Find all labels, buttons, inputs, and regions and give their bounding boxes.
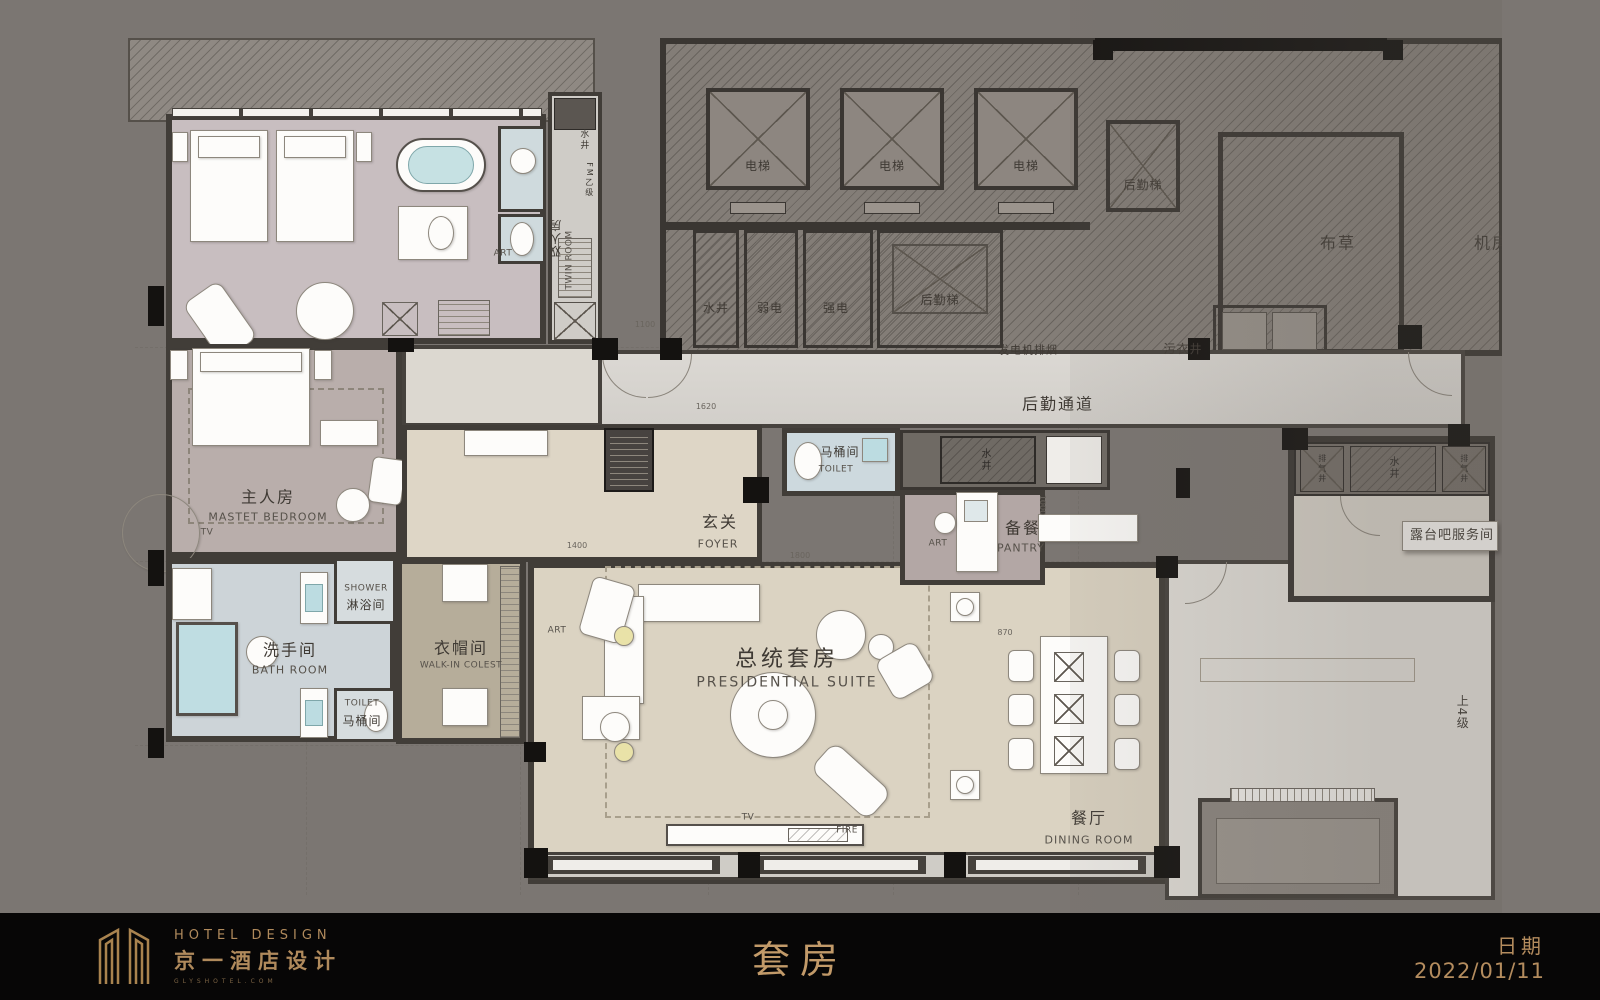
master-bedroom-label-zh: 主人房 (241, 487, 295, 506)
closet-label-en: WALK-IN COLEST (420, 661, 502, 672)
water-shaft-label-vert: 水井 (1386, 456, 1398, 480)
round-coffee-table-center (758, 700, 788, 730)
art-label: ART (548, 626, 567, 637)
display-shelves (610, 434, 648, 486)
suite-hallway (402, 345, 602, 427)
vent-shaft (554, 302, 596, 340)
window-glass (553, 860, 712, 870)
service-lift-label: 后勤梯 (920, 293, 959, 307)
foyer-label-en: FOYER (698, 537, 739, 550)
twin-room-label-en: TWIN ROOM (565, 230, 576, 289)
column (148, 286, 164, 326)
dining-chair (1008, 650, 1034, 682)
water-shaft-label-vert: 水井 (578, 129, 589, 151)
wc (510, 222, 534, 256)
water-shaft-label-vert: 水井 (978, 448, 990, 472)
elevator-shaft (706, 88, 810, 190)
dimension: 1400 (567, 541, 587, 551)
date-label: 日期 (1414, 930, 1545, 959)
elevator-label: 电梯 (1013, 159, 1039, 173)
elevator-door (730, 202, 786, 214)
column (944, 852, 966, 878)
elevator-door (864, 202, 920, 214)
water-shaft-room (693, 230, 739, 348)
nightstand (314, 350, 332, 380)
dimension: 1620 (696, 402, 716, 412)
shower-label-zh: 淋浴间 (346, 598, 385, 612)
master-bedroom-label-en: MASTET BEDROOM (208, 510, 327, 523)
column (1398, 325, 1422, 349)
generator-vent-label: 发电机排烟 (998, 343, 1058, 356)
closet-label-zh: 衣帽间 (434, 638, 488, 657)
guest-toilet-label-en: TOILET (819, 465, 853, 476)
weak-power-label: 弱电 (757, 301, 783, 315)
date-block: 日期 2022/01/11 (1414, 930, 1545, 983)
wc (428, 216, 454, 250)
twin-room-label-zh: 双人房 (549, 219, 563, 258)
exhaust-shaft-label: 排气井 (1317, 454, 1327, 484)
basin (305, 584, 323, 612)
guest-toilet-label-zh: 马桶间 (820, 445, 859, 459)
suite-label-zh: 总统套房 (735, 647, 839, 673)
suite-floorplan-sheet: { "footer": { "brand_en": "HOTEL DESIGN"… (0, 0, 1600, 1000)
toilet-master-label-zh: 马桶间 (342, 714, 381, 728)
column (1093, 40, 1113, 60)
column (660, 338, 682, 360)
console-table (464, 430, 548, 456)
foyer-label-zh: 玄关 (702, 512, 738, 531)
corridor-label: 后勤通道 (1022, 394, 1094, 413)
elevator-label: 电梯 (879, 159, 905, 173)
column (388, 338, 414, 352)
pillow (284, 136, 346, 158)
plant (956, 776, 974, 794)
master-tv-label: TV (201, 528, 214, 539)
column (524, 742, 546, 762)
dining-label-zh: 餐厅 (1071, 808, 1107, 827)
shower-label-en: SHOWER (344, 584, 387, 595)
suite-label-en: PRESIDENTIAL SUITE (696, 675, 877, 692)
fire-door-label: FM乙级 (584, 162, 594, 198)
nightstand (356, 132, 372, 162)
toilet-master-label-en: TOILET (345, 699, 379, 710)
table-mat (1054, 652, 1084, 682)
shower-bench (172, 568, 212, 620)
art-label: ART (929, 539, 948, 550)
floor-plan: 双人房 TWIN ROOM 主人房 MASTET BEDROOM TV 洗手间 … (0, 0, 1600, 913)
pantry-sink (964, 500, 988, 522)
floor-lamp (614, 742, 634, 762)
sheet-title: 套房 (0, 929, 1600, 984)
column (524, 848, 548, 878)
bath-room-label-zh: 洗手间 (263, 640, 317, 659)
lobby-divider-wall (665, 222, 1090, 230)
desk-chair (600, 712, 630, 742)
credenza (1038, 514, 1138, 542)
column (738, 852, 760, 878)
window-glass (976, 860, 1138, 870)
column (1154, 846, 1180, 878)
hanging-rail (500, 566, 520, 738)
background-crop (1502, 0, 1600, 913)
bath-room-label-en: BATH ROOM (252, 663, 328, 676)
bench (320, 420, 378, 446)
column (148, 550, 164, 586)
kettle (934, 512, 956, 534)
column (592, 338, 618, 360)
table-mat (1054, 694, 1084, 724)
weak-power-room (744, 230, 798, 348)
elevator-label: 电梯 (745, 159, 771, 173)
wardrobe (442, 688, 488, 726)
column (1176, 468, 1190, 498)
fire-label: FIRE (836, 826, 858, 837)
core-top-wall (1095, 38, 1387, 51)
exhaust-shaft-label: 排气井 (1459, 454, 1469, 484)
basin (305, 700, 323, 726)
service-corridor (598, 350, 1465, 428)
column (1448, 424, 1470, 446)
dining-chair (1114, 738, 1140, 770)
dining-chair (1008, 738, 1034, 770)
dimension: 1800 (790, 551, 810, 561)
art-label: ART (494, 249, 513, 260)
terrace-bar-label: 露台吧服务间 (1410, 528, 1494, 544)
date-value: 2022/01/11 (1414, 959, 1545, 983)
toilet-basin (862, 438, 888, 462)
soaking-tub (176, 622, 238, 716)
column (1383, 40, 1403, 60)
lounge-chair (296, 282, 354, 340)
elevator-door (998, 202, 1054, 214)
elevator-shaft (974, 88, 1078, 190)
window-strip (172, 108, 542, 117)
dining-chair (1114, 694, 1140, 726)
sofa (638, 584, 760, 622)
column (148, 728, 164, 758)
soiled-linen-panel (1222, 312, 1267, 350)
pantry-label-zh: 备餐 (1005, 518, 1041, 537)
pouf (336, 488, 370, 522)
water-shaft-label: 水井 (703, 301, 729, 315)
planter (1200, 658, 1415, 682)
table-mat (1054, 736, 1084, 766)
tv-label: TV (742, 813, 755, 824)
nightstand (170, 350, 188, 380)
column (1156, 556, 1178, 578)
stair-inner (1216, 818, 1380, 884)
hanging-rail (438, 300, 490, 336)
plant (956, 598, 974, 616)
service-lift-label: 后勤梯 (1123, 178, 1162, 192)
pillow (200, 352, 302, 372)
linen-label: 布草 (1320, 233, 1356, 252)
steps-label: 上4级 (1455, 695, 1469, 730)
nightstand (172, 132, 188, 162)
soiled-linen-label: 污衣井 (1163, 342, 1202, 356)
shower-head (510, 148, 536, 174)
duct-box (554, 98, 596, 130)
stair-treads (1230, 788, 1375, 802)
closet-box (382, 302, 418, 336)
bathtub-water (408, 146, 474, 184)
floor-lamp (614, 626, 634, 646)
wardrobe (442, 564, 488, 602)
pillow (198, 136, 260, 158)
strong-power-label: 强电 (823, 301, 849, 315)
dining-chair (1008, 694, 1034, 726)
pantry-label-en: PANTRY (997, 541, 1045, 554)
dimension: 1000 (1037, 495, 1047, 515)
dimension: 1100 (635, 320, 655, 330)
column (1282, 428, 1308, 450)
cabinet-box (1046, 436, 1102, 484)
soiled-linen-panel (1272, 312, 1317, 350)
dining-chair (1114, 650, 1140, 682)
window-glass (764, 860, 918, 870)
service-lift-shaft-2 (1106, 120, 1180, 212)
dimension: 870 (997, 628, 1012, 638)
column (743, 477, 769, 503)
elevator-shaft (840, 88, 944, 190)
dining-label-en: DINING ROOM (1045, 833, 1134, 846)
strong-power-room (803, 230, 873, 348)
title-bar: HOTEL DESIGN 京一酒店设计 GLYSHOTEL.COM 套房 日期 … (0, 913, 1600, 1000)
